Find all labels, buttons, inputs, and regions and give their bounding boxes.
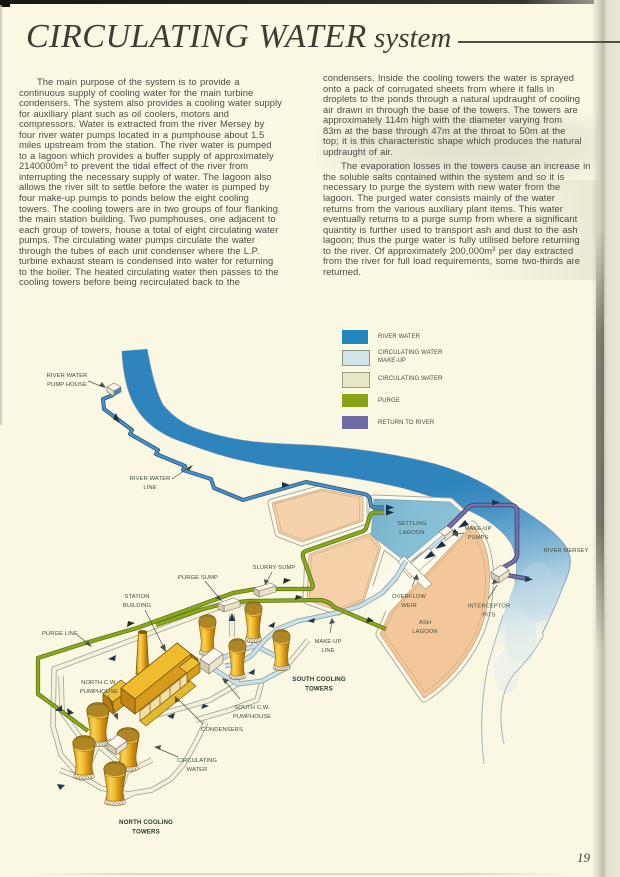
svg-text:INTERCEPTOR: INTERCEPTOR <box>468 604 511 610</box>
svg-text:PITS: PITS <box>482 613 495 619</box>
svg-text:LINE: LINE <box>321 648 334 654</box>
svg-text:OVERFLOW: OVERFLOW <box>392 594 426 600</box>
svg-text:PUMPS: PUMPS <box>467 535 488 541</box>
svg-text:WATER: WATER <box>187 767 208 773</box>
svg-text:LAGOON: LAGOON <box>399 530 424 536</box>
svg-text:RIVER WATER: RIVER WATER <box>47 373 88 379</box>
svg-text:SETTLING: SETTLING <box>397 521 427 527</box>
svg-text:PUMP HOUSE: PUMP HOUSE <box>47 382 87 388</box>
svg-text:CIRCULATING: CIRCULATING <box>177 758 217 764</box>
svg-text:LINE: LINE <box>143 485 156 491</box>
svg-text:NORTH COOLING: NORTH COOLING <box>119 819 173 826</box>
svg-text:TOWERS: TOWERS <box>305 686 333 693</box>
svg-text:SLURRY SUMP: SLURRY SUMP <box>253 565 296 571</box>
svg-text:WEIR: WEIR <box>401 603 417 609</box>
svg-text:NORTH C.W.: NORTH C.W. <box>81 680 117 686</box>
svg-text:ASH: ASH <box>419 620 431 626</box>
svg-text:BUILDING: BUILDING <box>123 603 152 609</box>
svg-text:STATION: STATION <box>125 594 150 600</box>
svg-text:RIVER WATER: RIVER WATER <box>130 476 171 482</box>
svg-text:MAKE-UP: MAKE-UP <box>464 526 491 532</box>
svg-text:PURGE LINE: PURGE LINE <box>42 631 78 637</box>
svg-text:TOWERS: TOWERS <box>132 829 160 836</box>
svg-text:LAGOON: LAGOON <box>412 629 437 635</box>
svg-text:RIVER MERSEY: RIVER MERSEY <box>543 548 588 554</box>
svg-text:PUMPHOUSE: PUMPHOUSE <box>80 689 118 695</box>
svg-text:SOUTH COOLING: SOUTH COOLING <box>292 676 346 683</box>
svg-text:CONDENSERS: CONDENSERS <box>201 727 243 733</box>
svg-text:PUMPHOUSE: PUMPHOUSE <box>233 714 271 720</box>
svg-text:PURGE SUMP: PURGE SUMP <box>178 575 218 581</box>
svg-text:MAKE-UP: MAKE-UP <box>314 639 341 645</box>
svg-text:SOUTH C.W.: SOUTH C.W. <box>234 705 270 711</box>
